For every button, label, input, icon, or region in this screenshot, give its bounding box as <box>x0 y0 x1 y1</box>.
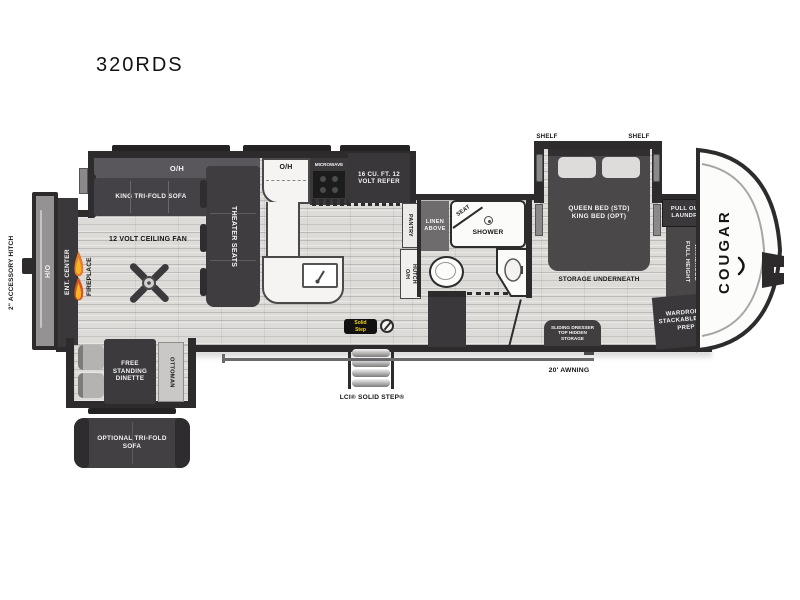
shower-label: SHOWER <box>460 229 516 237</box>
brand-logo: COUGAR <box>716 188 738 316</box>
fireplace-label: FIREPLACE <box>86 244 97 310</box>
optional-trifold-sofa: OPTIONAL TRI-FOLD SOFA <box>74 418 190 468</box>
shower-head-icon <box>484 216 493 225</box>
step-4 <box>352 379 390 387</box>
overhead-cabinet-kitchen: O/H <box>262 158 310 204</box>
opt-sofa-cap-right <box>175 418 190 468</box>
theater-seats-label: THEATER SEATS <box>226 188 240 286</box>
theater-armrest-2 <box>200 224 207 252</box>
wall-dinette-right <box>188 338 196 408</box>
refrigerator: 16 CU. FT. 12 VOLT REFER <box>348 153 410 203</box>
shower-head-dot <box>488 220 491 223</box>
fh-wardrobe-label-1: FULL HEIGHT <box>683 241 690 283</box>
bed-headboard <box>548 149 650 156</box>
slide-side-tab <box>79 168 88 194</box>
dinette-chair-1 <box>78 345 104 370</box>
certification-icon <box>380 319 394 333</box>
kitchen-counter <box>266 202 300 259</box>
wall-bed-slide-top <box>534 141 662 149</box>
bath-partition-block <box>428 297 466 347</box>
bed-pillow-left <box>558 157 596 178</box>
shelf-label-right: SHELF <box>620 133 658 140</box>
badge-line2: Step <box>344 327 377 334</box>
sliding-dresser: SLIDING DRESSER TOP HIDDEN STORAGE <box>544 320 601 346</box>
opt-sofa-cap-left <box>74 418 89 468</box>
front-cap <box>690 140 800 360</box>
dresser-label: SLIDING DRESSER TOP HIDDEN STORAGE <box>547 325 599 342</box>
theater-armrest-1 <box>200 180 207 208</box>
ottoman: OTTOMAN <box>158 342 184 402</box>
pantry-label: PANTRY <box>405 206 415 244</box>
king-sofa-label: KING TRI-FOLD SOFA <box>115 193 186 201</box>
ceiling-fan-icon <box>120 256 178 310</box>
wall-dinette-left <box>66 338 74 408</box>
dinette-label: FREE STANDING DINETTE <box>108 360 152 382</box>
accessory-hitch-label: 2" ACCESSORY HITCH <box>8 222 20 324</box>
tv-ho-slide: H/O <box>32 192 58 350</box>
king-trifold-sofa: KING TRI-FOLD SOFA <box>94 178 208 216</box>
microwave-label: MICROWAVE <box>310 162 348 168</box>
linen-label: LINEN ABOVE <box>423 219 447 232</box>
ottoman-label: OTTOMAN <box>165 347 177 397</box>
dinette-slide-bump <box>88 408 176 414</box>
certification-icon-slash <box>383 321 392 331</box>
bath-sink-cabinet <box>496 248 528 298</box>
pocket-door-track <box>467 292 509 295</box>
ho-slide-highlight <box>40 210 42 328</box>
bed-label-line1: QUEEN BED (STD) <box>548 205 650 213</box>
microwave-stove-unit: MICROWAVE <box>310 158 348 205</box>
sofa-divider-1 <box>130 181 131 213</box>
theater-armrest-3 <box>200 268 207 296</box>
bed-pillow-right <box>602 157 640 178</box>
dinette-table: FREE STANDING DINETTE <box>104 339 156 404</box>
solid-step-badge: Solid Step <box>344 319 377 334</box>
island-sink <box>302 263 338 288</box>
bed-shelf-tab-left <box>536 154 543 182</box>
ceiling-fan-label: 12 VOLT CEILING FAN <box>103 236 193 256</box>
sofa-divider-2 <box>168 181 169 213</box>
fireplace-flame-icon <box>72 250 85 304</box>
ho-label: H/O <box>44 226 54 316</box>
nightstand-left <box>535 204 543 236</box>
sink-faucet-icon <box>304 265 336 286</box>
awning-label: 20' AWNING <box>541 367 597 375</box>
entry-steps <box>348 348 394 389</box>
theater-seats: THEATER SEATS <box>206 166 260 307</box>
optional-sofa-label: OPTIONAL TRI-FOLD SOFA <box>92 435 172 450</box>
bed-shelf-tab-right <box>653 154 660 182</box>
solid-step-label: LCI® SOLID STEP® <box>322 394 422 402</box>
dinette-chair-2 <box>78 373 104 398</box>
oh-kitchen-dash <box>266 180 306 181</box>
kitchen-island <box>262 256 344 304</box>
awning-end-left <box>222 354 225 363</box>
nightstand-right <box>653 204 661 236</box>
shelf-label-left: SHELF <box>528 133 566 140</box>
refer-label: 16 CU. FT. 12 VOLT REFER <box>356 171 402 186</box>
floorplan-canvas: 320RDS 2" ACCESSORY HITCH H/O ENT. CENTE… <box>0 0 800 600</box>
awning-line <box>222 358 594 361</box>
cooktop-burners-icon <box>313 171 345 198</box>
storage-underneath-label: STORAGE UNDERNEATH <box>545 276 653 283</box>
toilet <box>429 256 464 288</box>
bed-label: QUEEN BED (STD) KING BED (OPT) <box>548 205 650 220</box>
bed: QUEEN BED (STD) KING BED (OPT) <box>548 149 650 271</box>
awning-end-right <box>584 352 594 355</box>
oh-living-label: O/H <box>170 164 184 173</box>
linen-cabinet: LINEN ABOVE <box>421 201 449 251</box>
hutch-oh-label: O/H <box>404 269 410 279</box>
brand-swoosh-icon <box>736 256 750 276</box>
oh-kitchen-label: O/H <box>272 164 300 172</box>
shower: SEAT SHOWER <box>450 200 526 248</box>
model-title: 320RDS <box>96 54 184 77</box>
step-1 <box>352 349 390 357</box>
toilet-seat-ring <box>435 262 456 280</box>
bed-label-line2: KING BED (OPT) <box>548 213 650 221</box>
step-3 <box>352 369 390 377</box>
